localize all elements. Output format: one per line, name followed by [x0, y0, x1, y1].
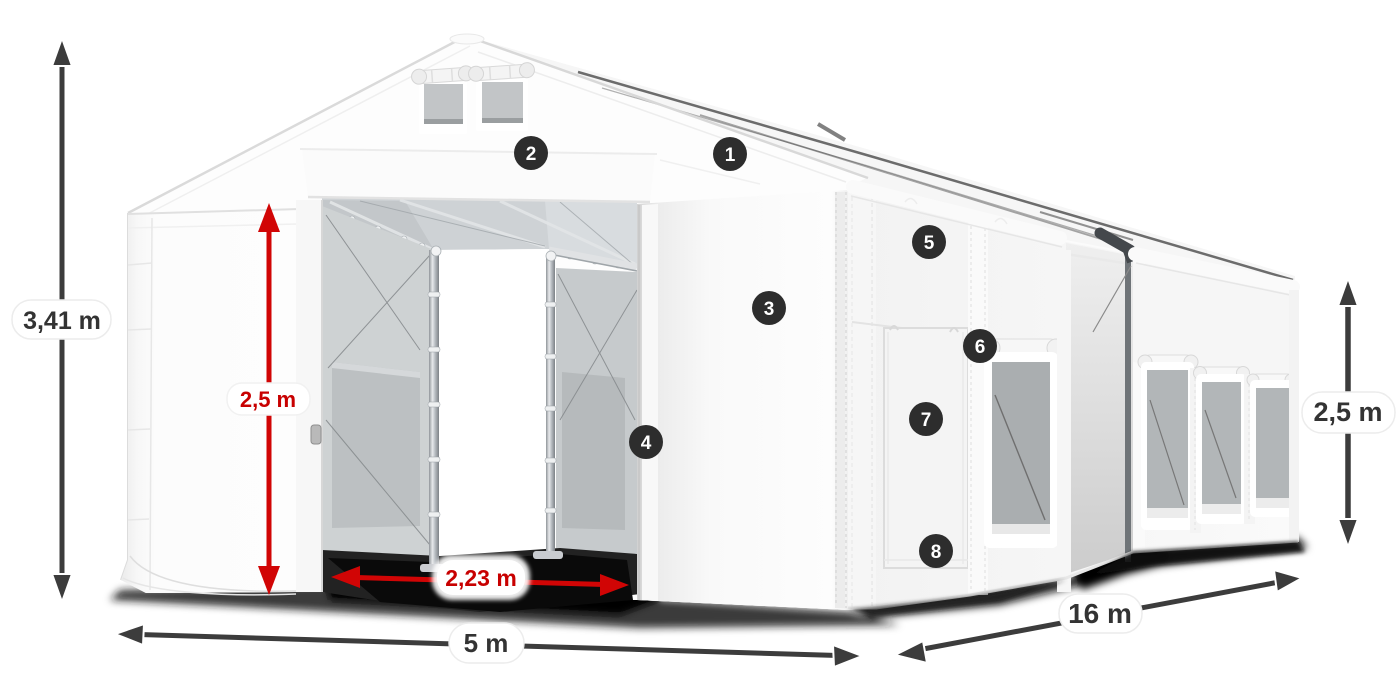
svg-text:5 m: 5 m [464, 628, 509, 658]
svg-text:7: 7 [921, 410, 932, 431]
svg-text:2,5 m: 2,5 m [240, 387, 296, 412]
svg-text:3,41 m: 3,41 m [23, 307, 101, 335]
svg-text:16 m: 16 m [1068, 598, 1132, 629]
svg-text:5: 5 [924, 233, 935, 254]
svg-text:4: 4 [641, 433, 652, 454]
svg-text:2,5 m: 2,5 m [1313, 397, 1382, 427]
svg-text:8: 8 [931, 542, 942, 563]
svg-text:1: 1 [725, 145, 736, 166]
svg-text:2: 2 [526, 144, 537, 165]
svg-text:2,23 m: 2,23 m [445, 565, 517, 591]
svg-text:6: 6 [975, 337, 986, 358]
svg-text:3: 3 [764, 299, 775, 320]
